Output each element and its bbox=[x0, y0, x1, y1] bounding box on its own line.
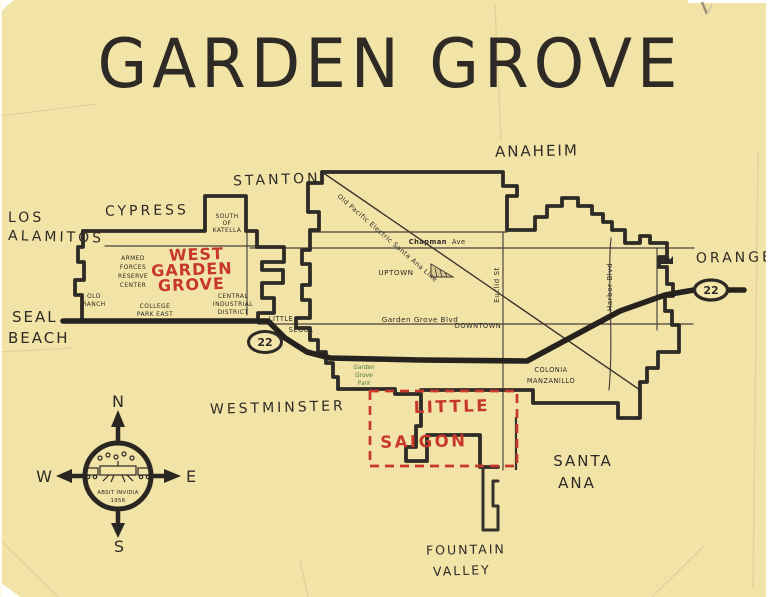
label-armed-forces-3: RESERVE bbox=[118, 273, 148, 280]
compass-e: E bbox=[186, 467, 196, 486]
label-los-alamitos-2: ALAMITOS bbox=[8, 228, 104, 247]
label-little-seoul-2: SEOUL bbox=[289, 326, 314, 334]
label-central-industrial-1: CENTRAL bbox=[218, 293, 249, 300]
scanned-map-page: GARDEN GROVE 22 bbox=[0, 0, 770, 597]
route-22-shield-west: 22 bbox=[249, 332, 282, 353]
label-los-alamitos-1: LOS bbox=[8, 210, 44, 226]
label-south-of-katella-1: SOUTH bbox=[215, 213, 238, 220]
label-seal-beach-1: SEAL bbox=[12, 308, 58, 326]
label-little-seoul-1: LITTLE bbox=[269, 315, 293, 323]
label-stanton: STANTON bbox=[233, 170, 321, 189]
label-armed-forces-2: FORCES bbox=[120, 264, 146, 271]
label-chapman: Chapman bbox=[409, 238, 447, 246]
label-harbor-blvd: Harbor Blvd bbox=[605, 263, 614, 311]
route-22-label-west: 22 bbox=[257, 336, 272, 349]
label-college-park-1: COLLEGE bbox=[140, 303, 171, 310]
label-uptown: UPTOWN bbox=[378, 268, 413, 277]
label-santa-ana-1: SANTA bbox=[553, 452, 613, 470]
compass-n: N bbox=[112, 392, 124, 411]
map-title-group: GARDEN GROVE bbox=[97, 25, 682, 103]
label-chapman-ave: Ave bbox=[452, 238, 466, 246]
label-downtown: DOWNTOWN bbox=[455, 322, 501, 330]
label-orange: ORANGE bbox=[696, 249, 770, 266]
label-gg-park-2: Grove bbox=[355, 373, 373, 379]
label-old-ranch-2: RANCH bbox=[82, 301, 105, 308]
label-central-industrial-3: DISTRICT bbox=[218, 309, 249, 316]
label-santa-ana-2: ANA bbox=[558, 474, 596, 492]
label-college-park-2: PARK EAST bbox=[137, 311, 173, 318]
label-armed-forces-1: ARMED bbox=[121, 255, 145, 262]
label-old-ranch-1: OLD bbox=[87, 293, 101, 300]
label-gg-park-1: Garden bbox=[353, 365, 375, 371]
compass-w: W bbox=[36, 467, 52, 486]
label-cypress: CYPRESS bbox=[105, 202, 189, 219]
label-euclid-st: Euclid St bbox=[492, 267, 501, 303]
route-22-shield-east: 22 bbox=[695, 280, 728, 300]
label-little-saigon-1: LITTLE bbox=[413, 396, 490, 417]
label-garden-grove-blvd: Garden Grove Blvd bbox=[382, 315, 459, 324]
route-22-label-east: 22 bbox=[703, 284, 718, 297]
label-west-gg-3: GROVE bbox=[158, 274, 226, 295]
label-central-industrial-2: INDUSTRIAL bbox=[213, 301, 253, 308]
compass-s: S bbox=[114, 537, 124, 556]
garden-grove-map: GARDEN GROVE 22 bbox=[0, 0, 770, 597]
label-fountain-valley-1: FOUNTAIN bbox=[426, 541, 506, 557]
page-title: GARDEN GROVE bbox=[97, 25, 682, 103]
label-colonia-1: COLONIA bbox=[534, 366, 567, 374]
label-anaheim: ANAHEIM bbox=[495, 141, 579, 160]
compass-motto: ABSIT INVIDIA bbox=[97, 490, 139, 496]
label-fountain-valley-2: VALLEY bbox=[433, 562, 491, 579]
label-south-of-katella-3: KATELLA bbox=[213, 227, 242, 234]
label-armed-forces-4: CENTER bbox=[120, 282, 147, 289]
label-gg-park-3: Park bbox=[358, 381, 371, 387]
label-little-saigon-2: SAIGON bbox=[380, 431, 467, 452]
label-colonia-2: MANZANILLO bbox=[527, 377, 575, 385]
compass-year: 1956 bbox=[111, 498, 126, 504]
label-south-of-katella-2: OF bbox=[223, 220, 232, 227]
label-seal-beach-2: BEACH bbox=[8, 329, 70, 347]
